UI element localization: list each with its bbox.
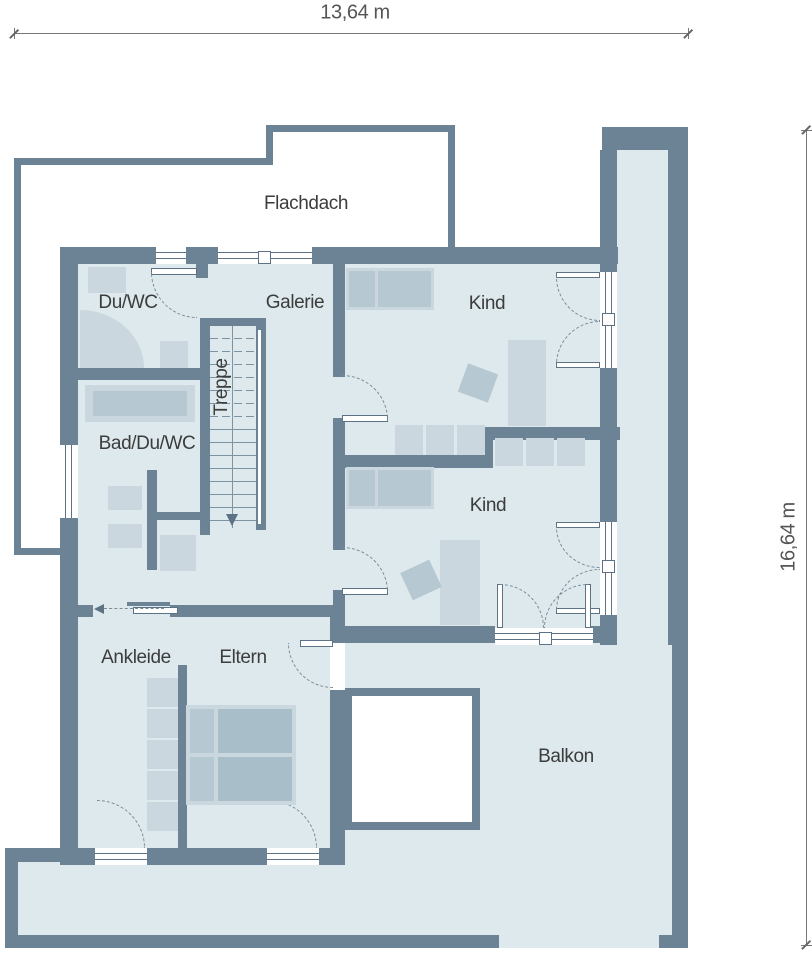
room-label-balkon: Balkon	[538, 746, 594, 768]
balcony-opening-border	[344, 688, 352, 830]
door-handle	[602, 313, 615, 326]
flachdach-outline-wall	[448, 125, 455, 247]
wardrobe-cell	[457, 425, 485, 455]
balcony-strip-cap-wall	[602, 127, 688, 150]
wardrobe-cell	[495, 438, 523, 466]
flachdach-outline-wall	[266, 125, 455, 132]
bed-mattress	[218, 757, 292, 801]
room-label-kind1: Kind	[469, 293, 505, 315]
strip-inner-wall	[600, 368, 617, 522]
parents-right-wall	[330, 690, 345, 848]
exterior-wall-right-lower	[672, 645, 688, 948]
bath-partition-wall	[147, 470, 157, 570]
desk	[440, 540, 480, 625]
sliding-door-direction-line	[104, 608, 164, 609]
wardrobe-cell	[147, 709, 178, 738]
shower-wc-door-stub	[196, 262, 208, 278]
staircase-direction-arrow	[226, 514, 238, 526]
terrace-band-floor	[18, 862, 672, 935]
balcony-opening	[352, 696, 472, 822]
balcony-opening-border	[472, 688, 480, 830]
bed-pillow	[349, 271, 375, 307]
staircase-handrail	[258, 330, 261, 524]
flachdach-outline-wall	[14, 158, 21, 555]
flachdach-outline-wall	[14, 548, 60, 555]
room-label-badduwc: Bad/Du/WC	[99, 433, 196, 455]
hall-wall	[333, 418, 345, 550]
terrace-wall-bottom	[5, 935, 499, 948]
floor-plan: 13,64 m 16,64 m	[0, 0, 812, 953]
room-label-treppe: Treppe	[211, 358, 233, 415]
bed-pillow	[190, 709, 214, 753]
exterior-wall-left	[60, 264, 78, 848]
terrace-recess-floor	[499, 931, 659, 948]
shower-wc-bottom-wall	[60, 368, 207, 380]
balcony-opening-border	[344, 822, 480, 830]
door-handle	[539, 632, 552, 645]
kid2-balcony-wall	[345, 626, 495, 643]
stair-wall-left	[200, 318, 210, 535]
bath-partition-wall	[147, 512, 200, 520]
room-label-flachdach: Flachdach	[264, 193, 348, 215]
wardrobe-cell	[526, 438, 554, 466]
strip-inner-wall	[600, 150, 617, 272]
washbasin	[160, 341, 188, 368]
window-top-small	[156, 247, 186, 264]
wardrobe-cell	[426, 425, 454, 455]
bed-mattress	[218, 709, 292, 753]
balcony-opening-border	[344, 688, 480, 696]
balcony-strip-floor	[613, 150, 668, 650]
room-label-ankleide: Ankleide	[101, 647, 171, 669]
window-handle	[258, 251, 271, 264]
bed-mattress	[378, 470, 431, 506]
window-left-bath	[60, 445, 78, 518]
flachdach-outline-wall	[14, 158, 273, 165]
terrace-wall-bottom	[659, 935, 688, 948]
shower	[160, 535, 196, 571]
room-label-galerie: Galerie	[266, 292, 324, 314]
parents-top-wall	[170, 605, 333, 617]
dimension-height-line	[806, 130, 807, 945]
sliding-door-track	[127, 602, 170, 606]
desk	[508, 340, 546, 426]
room-label-kind2: Kind	[470, 495, 506, 517]
washbasin	[108, 486, 142, 510]
room-label-duwc: Du/WC	[98, 292, 157, 314]
kid2-balcony-wall	[590, 626, 617, 643]
wardrobe-cell	[147, 771, 178, 800]
window-bottom-dressing	[95, 848, 147, 865]
exterior-wall-right-upper	[668, 150, 688, 645]
bathtub-inner	[93, 391, 187, 416]
sliding-door-arrow-icon	[94, 604, 104, 614]
wardrobe-cell	[147, 678, 178, 707]
dimension-width-label: 13,64 m	[320, 2, 389, 25]
room-label-eltern: Eltern	[219, 647, 266, 669]
washbasin	[108, 524, 142, 548]
wardrobe-cell	[147, 802, 178, 831]
cabinet	[88, 267, 126, 293]
bed-pillow	[190, 757, 214, 801]
dimension-height-label: 16,64 m	[778, 502, 801, 571]
door-handle	[602, 560, 615, 573]
staircase-center-line	[232, 326, 233, 528]
exterior-wall-top	[60, 247, 618, 264]
window-bottom-parents	[267, 848, 319, 865]
dimension-width-line	[14, 33, 688, 34]
toilet	[88, 341, 116, 368]
terrace-wall-left	[5, 848, 18, 945]
bed-pillow	[349, 470, 375, 506]
wardrobe-cell	[557, 438, 585, 466]
bed-mattress	[378, 271, 431, 307]
parents-top-wall	[78, 605, 93, 617]
wardrobe-cell	[147, 740, 178, 769]
hall-wall	[333, 264, 345, 377]
wardrobe-cell	[395, 425, 423, 455]
